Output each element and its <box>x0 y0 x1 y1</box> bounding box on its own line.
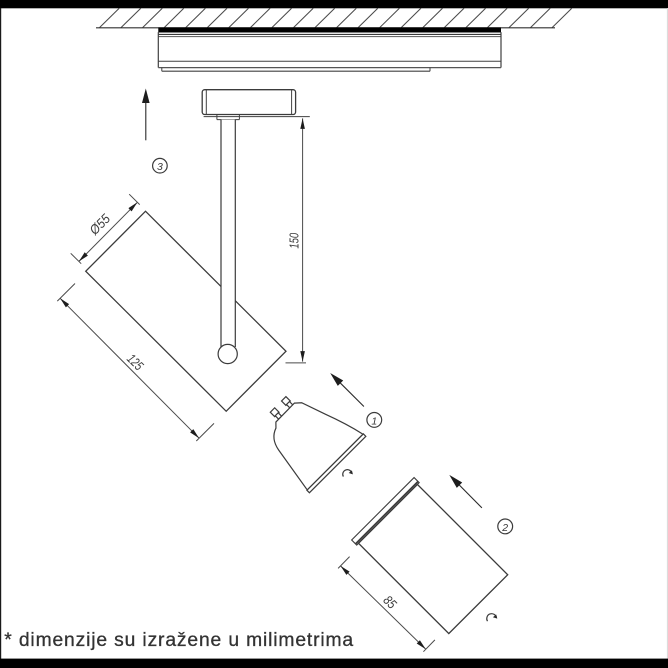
svg-text:* dimenzije su izražene u mili: * dimenzije su izražene u milimetrima <box>4 630 354 651</box>
svg-text:2: 2 <box>501 522 508 534</box>
svg-text:150: 150 <box>287 232 302 248</box>
svg-text:3: 3 <box>157 161 163 173</box>
svg-text:1: 1 <box>371 415 377 427</box>
